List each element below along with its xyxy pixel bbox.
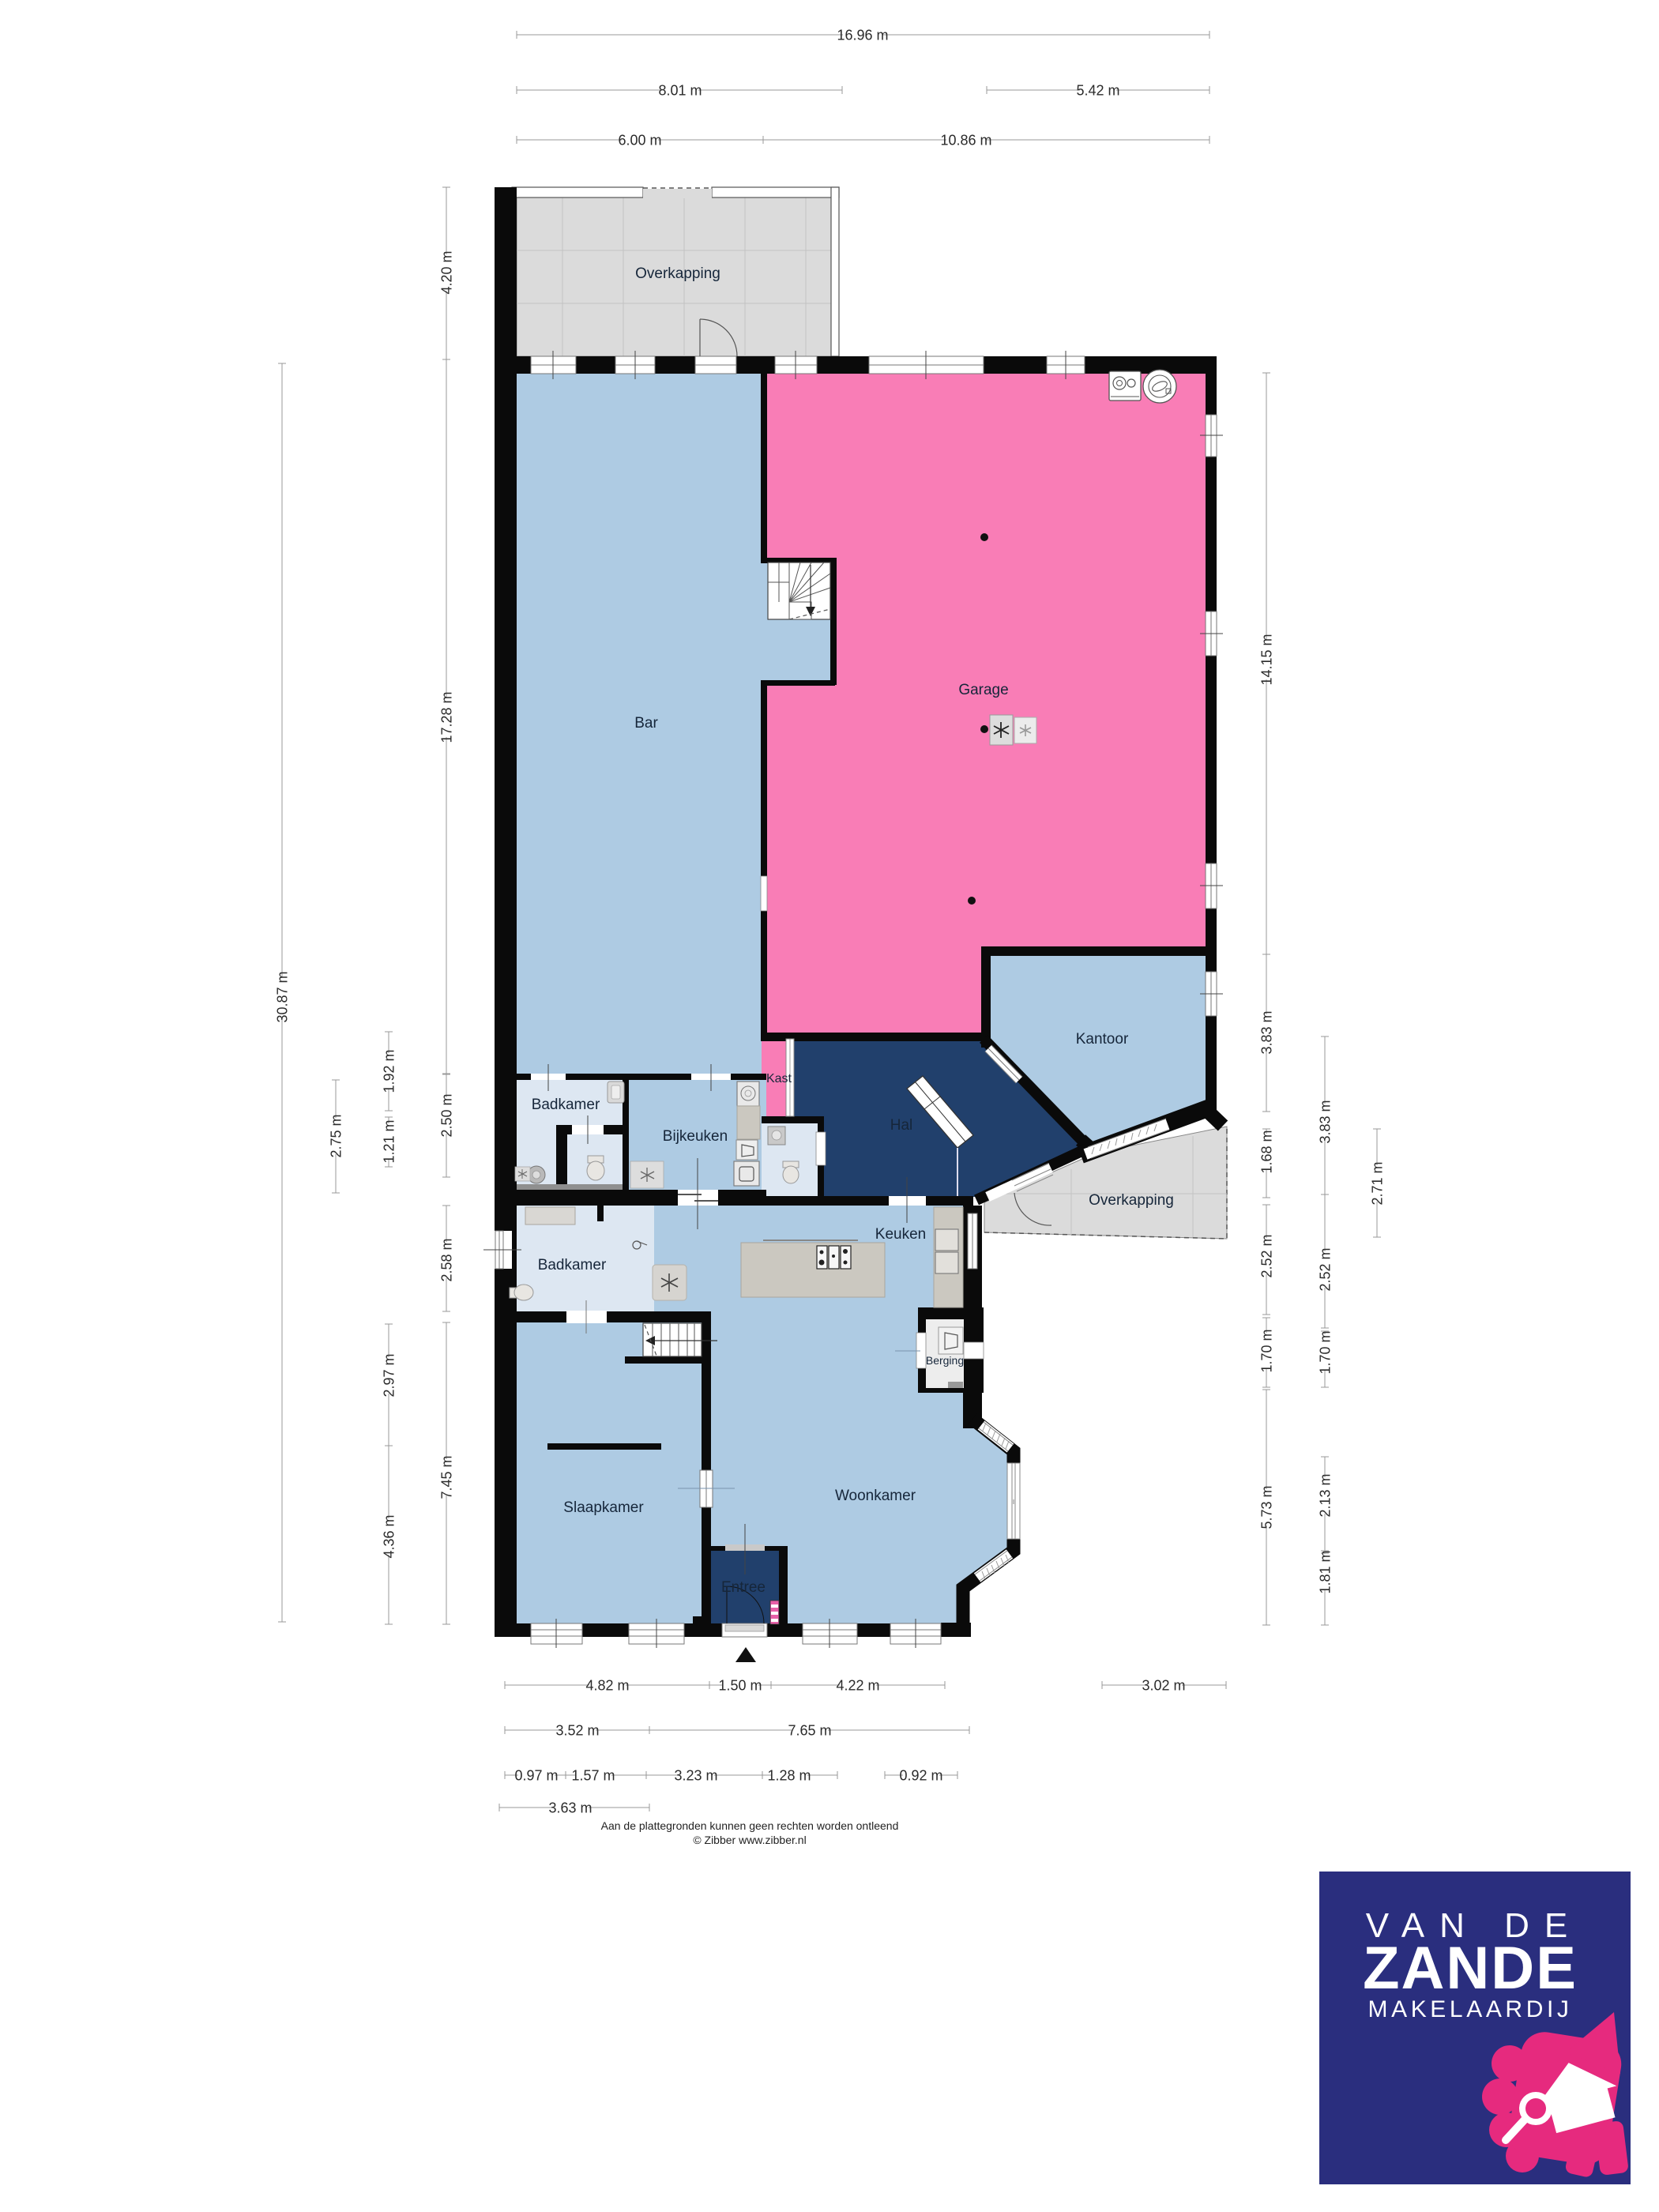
svg-text:10.86 m: 10.86 m xyxy=(940,133,991,149)
svg-text:1.57 m: 1.57 m xyxy=(571,1768,615,1784)
svg-text:0.97 m: 0.97 m xyxy=(514,1768,558,1784)
svg-text:2.71 m: 2.71 m xyxy=(1370,1161,1386,1205)
svg-text:5.73 m: 5.73 m xyxy=(1259,1485,1275,1529)
svg-text:Slaapkamer: Slaapkamer xyxy=(563,1499,644,1516)
svg-text:3.83 m: 3.83 m xyxy=(1259,1010,1275,1054)
svg-text:Woonkamer: Woonkamer xyxy=(835,1488,916,1504)
svg-text:0.92 m: 0.92 m xyxy=(899,1768,942,1784)
svg-text:Keuken: Keuken xyxy=(875,1226,926,1243)
svg-text:1.68 m: 1.68 m xyxy=(1259,1130,1275,1173)
svg-text:2.58 m: 2.58 m xyxy=(439,1238,455,1281)
svg-text:2.52 m: 2.52 m xyxy=(1259,1234,1275,1277)
svg-text:3.23 m: 3.23 m xyxy=(674,1768,717,1784)
svg-text:1.28 m: 1.28 m xyxy=(767,1768,811,1784)
svg-text:2.50 m: 2.50 m xyxy=(439,1093,455,1137)
svg-text:Kast: Kast xyxy=(766,1072,792,1085)
svg-text:Badkamer: Badkamer xyxy=(538,1257,607,1273)
svg-text:Kantoor: Kantoor xyxy=(1076,1031,1129,1048)
svg-text:1.70 m: 1.70 m xyxy=(1318,1330,1334,1374)
svg-text:Berging: Berging xyxy=(926,1354,964,1367)
svg-text:Hal: Hal xyxy=(890,1117,913,1134)
svg-text:Bar: Bar xyxy=(634,715,658,732)
svg-text:Overkapping: Overkapping xyxy=(635,265,720,282)
svg-text:Garage: Garage xyxy=(958,682,1008,698)
svg-text:Badkamer: Badkamer xyxy=(532,1097,600,1113)
svg-text:2.75 m: 2.75 m xyxy=(329,1114,344,1157)
svg-text:ZANDE: ZANDE xyxy=(1363,1935,1578,2002)
svg-text:5.42 m: 5.42 m xyxy=(1076,83,1119,99)
svg-text:30.87 m: 30.87 m xyxy=(275,971,291,1022)
svg-text:1.92 m: 1.92 m xyxy=(382,1049,397,1093)
svg-text:© Zibber www.zibber.nl: © Zibber www.zibber.nl xyxy=(693,1834,806,1846)
svg-text:17.28 m: 17.28 m xyxy=(439,691,455,743)
svg-text:4.36 m: 4.36 m xyxy=(382,1514,397,1558)
svg-text:7.65 m: 7.65 m xyxy=(788,1723,831,1739)
svg-text:Bijkeuken: Bijkeuken xyxy=(663,1128,728,1145)
svg-text:3.83 m: 3.83 m xyxy=(1318,1100,1334,1143)
svg-text:Aan de plattegronden kunnen ge: Aan de plattegronden kunnen geen rechten… xyxy=(601,1819,899,1832)
svg-text:3.63 m: 3.63 m xyxy=(548,1800,592,1816)
svg-text:4.20 m: 4.20 m xyxy=(439,250,455,294)
svg-text:Entree: Entree xyxy=(721,1579,766,1596)
svg-text:Overkapping: Overkapping xyxy=(1089,1192,1174,1209)
svg-text:3.02 m: 3.02 m xyxy=(1142,1678,1185,1694)
svg-text:8.01 m: 8.01 m xyxy=(658,83,702,99)
svg-text:1.21 m: 1.21 m xyxy=(382,1119,397,1163)
svg-text:2.97 m: 2.97 m xyxy=(382,1353,397,1397)
svg-text:1.50 m: 1.50 m xyxy=(718,1678,762,1694)
svg-text:3.52 m: 3.52 m xyxy=(555,1723,599,1739)
svg-text:1.81 m: 1.81 m xyxy=(1318,1550,1334,1593)
svg-text:16.96 m: 16.96 m xyxy=(837,28,888,43)
svg-text:1.70 m: 1.70 m xyxy=(1259,1329,1275,1372)
svg-text:6.00 m: 6.00 m xyxy=(618,133,661,149)
svg-text:2.13 m: 2.13 m xyxy=(1318,1473,1334,1517)
svg-text:4.82 m: 4.82 m xyxy=(585,1678,629,1694)
svg-text:14.15 m: 14.15 m xyxy=(1259,634,1275,685)
svg-text:7.45 m: 7.45 m xyxy=(439,1455,455,1499)
svg-text:2.52 m: 2.52 m xyxy=(1318,1247,1334,1291)
svg-text:4.22 m: 4.22 m xyxy=(836,1678,879,1694)
svg-text:MAKELAARDIJ: MAKELAARDIJ xyxy=(1368,1996,1573,2022)
